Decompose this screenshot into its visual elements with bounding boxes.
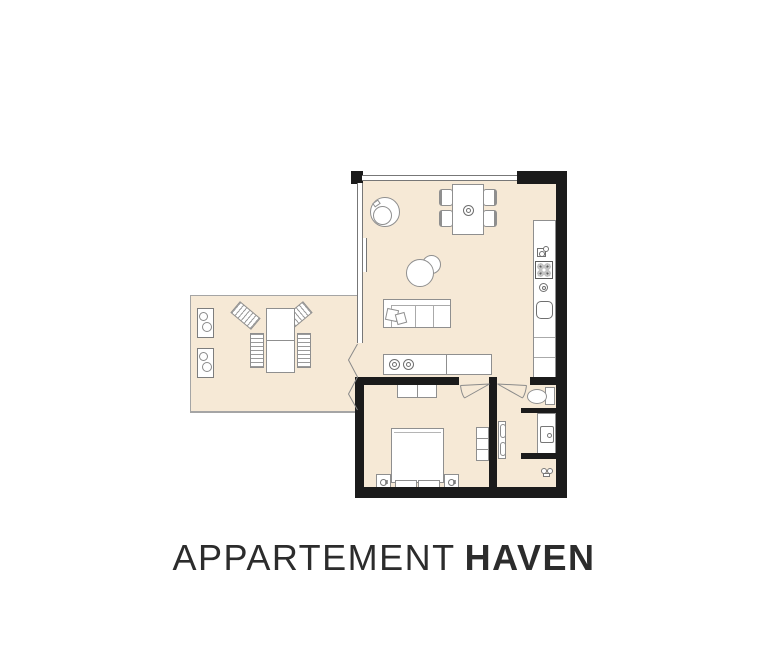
folding-door <box>349 344 358 410</box>
bathroom-door-swing <box>498 384 527 398</box>
plan-title-bold: HAVEN <box>465 537 596 578</box>
plan-title: APPARTEMENTHAVEN <box>0 537 768 579</box>
plan-title-light: APPARTEMENT <box>172 537 455 578</box>
bedroom-door-swing <box>461 384 490 398</box>
